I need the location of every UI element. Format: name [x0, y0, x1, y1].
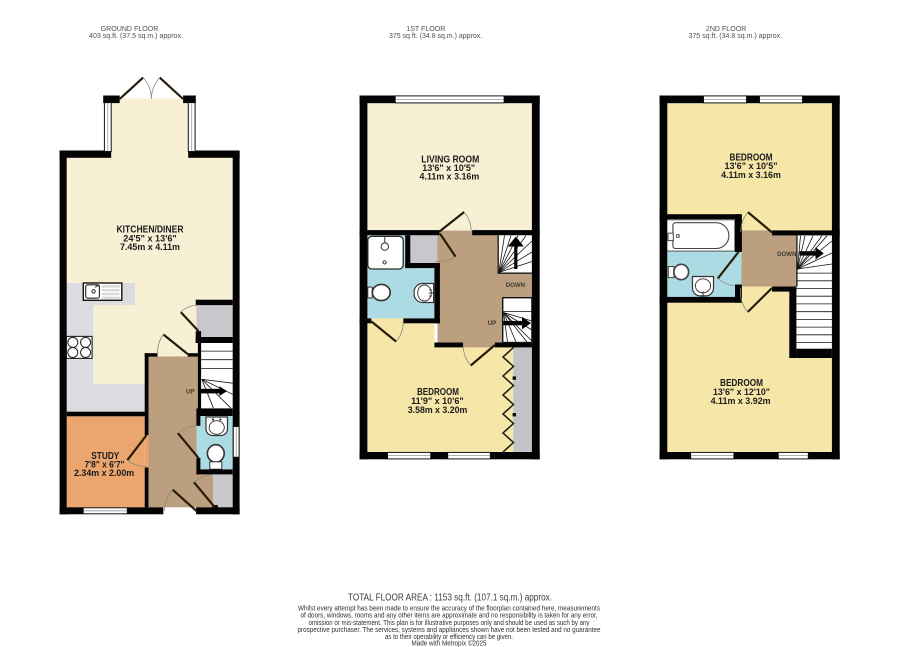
svg-text:UP: UP — [186, 388, 195, 395]
svg-text:2.34m x 2.00m: 2.34m x 2.00m — [74, 468, 134, 479]
svg-text:DOWN: DOWN — [777, 251, 797, 258]
svg-text:403 sq.ft. (37.5 sq.m.) approx: 403 sq.ft. (37.5 sq.m.) approx. — [89, 33, 183, 40]
svg-text:3.58m x 3.20m: 3.58m x 3.20m — [408, 405, 468, 416]
svg-text:375 sq.ft. (34.8 sq.m.) approx: 375 sq.ft. (34.8 sq.m.) approx. — [389, 33, 482, 40]
svg-text:Made with Metropix ©2025: Made with Metropix ©2025 — [412, 639, 487, 647]
svg-text:UP: UP — [488, 320, 497, 327]
svg-text:TOTAL FLOOR AREA : 1153 sq.ft.: TOTAL FLOOR AREA : 1153 sq.ft. (107.1 sq… — [348, 592, 552, 604]
svg-text:4.11m x 3.16m: 4.11m x 3.16m — [721, 170, 781, 181]
svg-text:4.11m x 3.92m: 4.11m x 3.92m — [711, 396, 771, 407]
svg-text:4.11m x 3.16m: 4.11m x 3.16m — [420, 172, 480, 183]
svg-text:DOWN: DOWN — [506, 282, 526, 289]
svg-text:375 sq.ft. (34.8 sq.m.) approx: 375 sq.ft. (34.8 sq.m.) approx. — [689, 33, 783, 40]
svg-text:7.45m x 4.11m: 7.45m x 4.11m — [120, 242, 180, 253]
